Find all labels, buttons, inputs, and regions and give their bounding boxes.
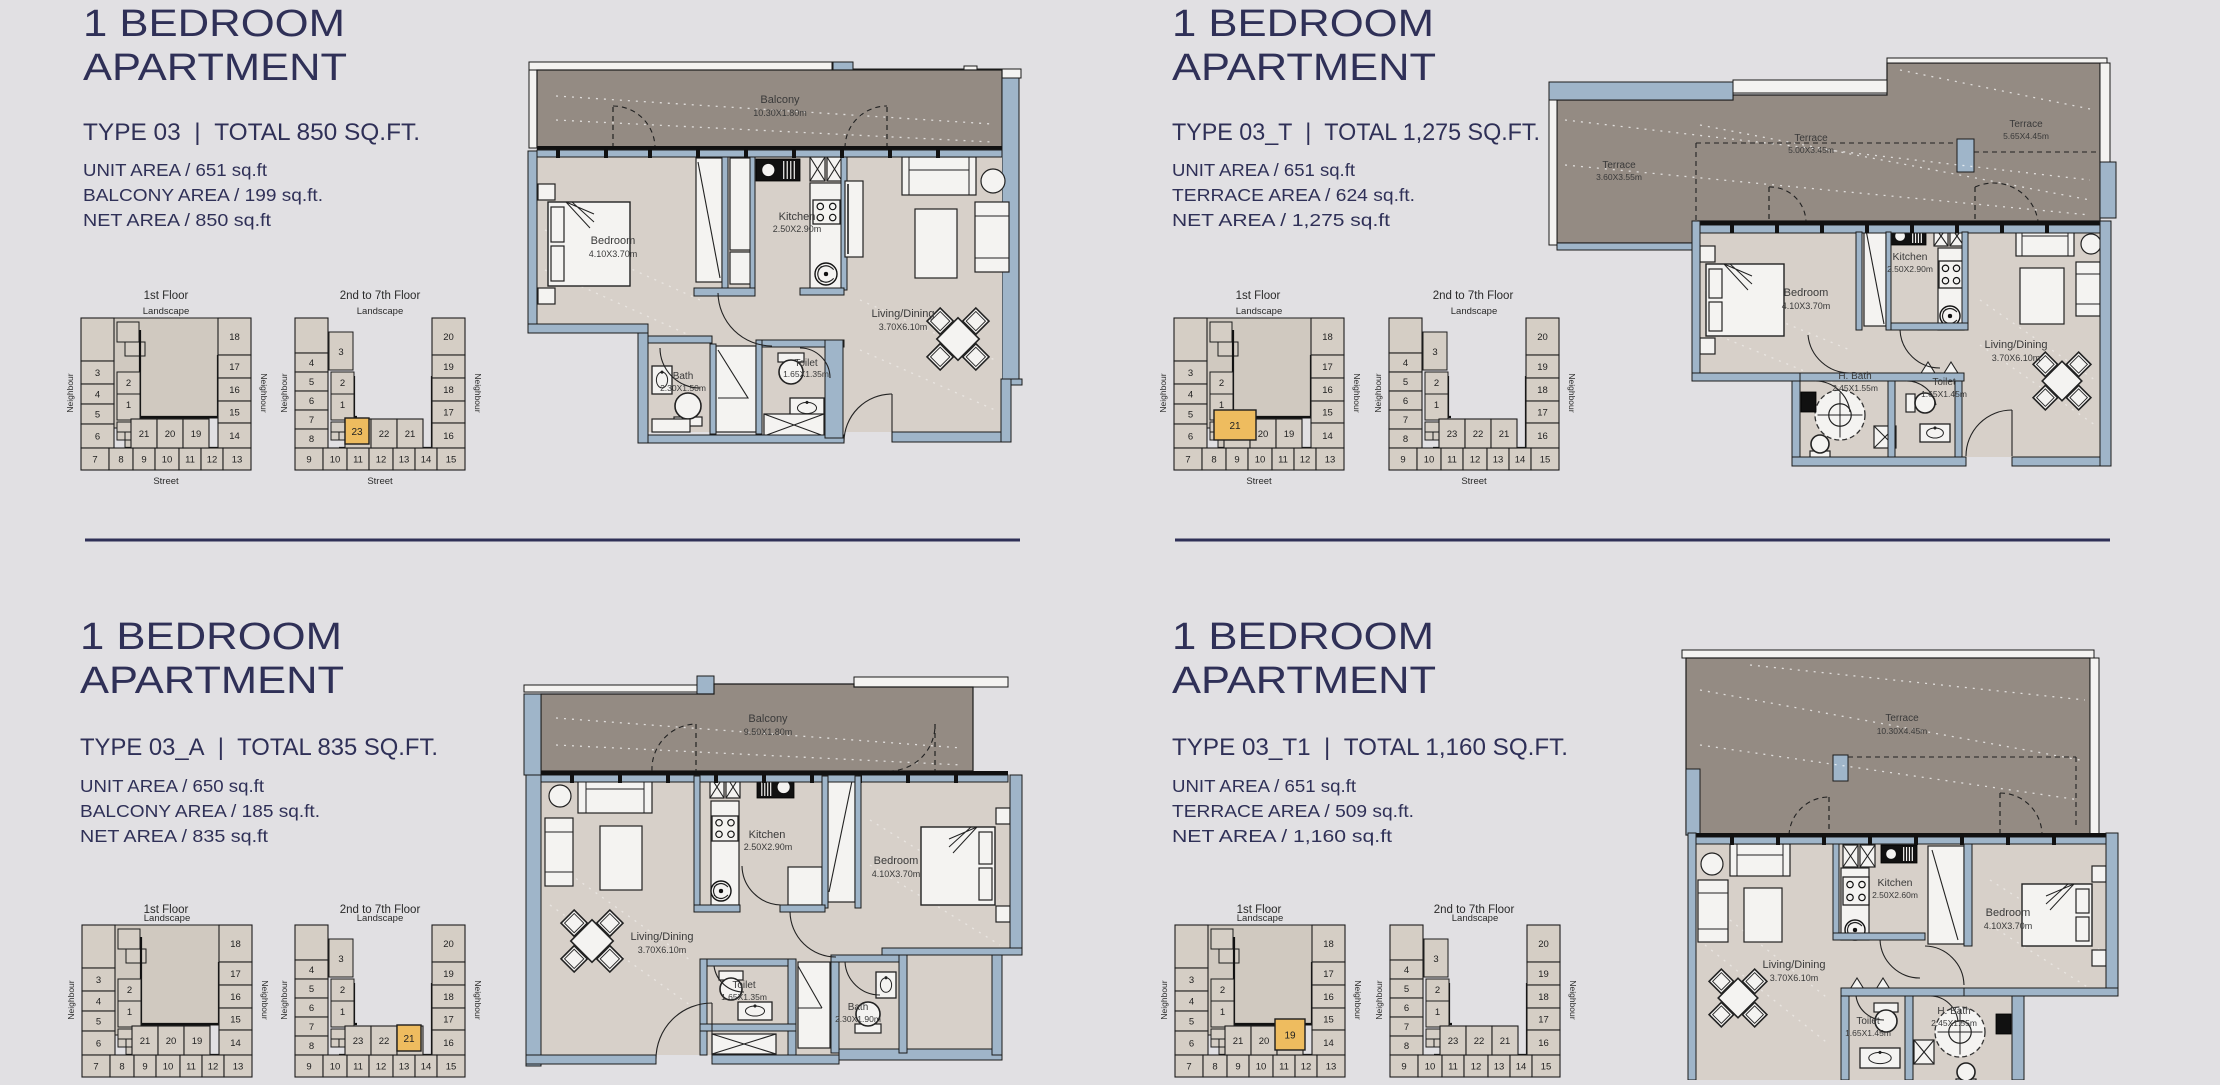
svg-text:17: 17	[1537, 408, 1548, 419]
svg-text:4: 4	[1189, 997, 1194, 1008]
svg-text:20: 20	[165, 429, 176, 440]
svg-text:Toilet: Toilet	[1932, 377, 1956, 388]
svg-text:13: 13	[1493, 455, 1504, 466]
svg-text:12: 12	[376, 455, 387, 466]
svg-text:2.45X1.55m: 2.45X1.55m	[1832, 383, 1878, 393]
svg-text:9: 9	[141, 455, 146, 466]
svg-text:11: 11	[185, 455, 195, 466]
svg-text:Toilet: Toilet	[794, 358, 818, 369]
svg-text:13: 13	[232, 455, 243, 466]
svg-text:18: 18	[1323, 939, 1334, 950]
svg-text:Neighbour: Neighbour	[473, 373, 483, 412]
svg-text:16: 16	[443, 431, 454, 442]
svg-text:1: 1	[1434, 400, 1439, 411]
svg-text:12: 12	[1301, 1062, 1312, 1073]
svg-text:5: 5	[1189, 1017, 1194, 1028]
svg-text:2nd to 7th Floor: 2nd to 7th Floor	[340, 290, 421, 302]
svg-text:TYPE 03_T1 | TOTAL 1,160 SQ.: TYPE 03_T1 | TOTAL 1,160 SQ.FT.	[1172, 734, 1568, 761]
svg-text:22: 22	[379, 429, 390, 440]
svg-text:1: 1	[1435, 1007, 1440, 1018]
svg-text:11: 11	[1447, 455, 1457, 466]
svg-text:8: 8	[309, 434, 314, 445]
svg-text:Neighbour: Neighbour	[260, 980, 270, 1019]
svg-text:APARTMENT: APARTMENT	[80, 660, 344, 702]
svg-text:21: 21	[140, 1036, 151, 1047]
svg-text:18: 18	[1322, 332, 1333, 343]
svg-text:Bedroom: Bedroom	[1986, 907, 2031, 919]
svg-text:BALCONY AREA / 199 sq.ft.: BALCONY AREA / 199 sq.ft.	[83, 185, 323, 205]
svg-text:6: 6	[96, 1039, 101, 1050]
svg-text:4: 4	[95, 390, 100, 401]
svg-text:APARTMENT: APARTMENT	[1172, 660, 1436, 702]
svg-text:6: 6	[1189, 1039, 1194, 1050]
svg-text:Living/Dining: Living/Dining	[872, 308, 935, 320]
svg-text:21: 21	[403, 1034, 415, 1045]
svg-text:4: 4	[96, 997, 101, 1008]
svg-text:2.50X2.90m: 2.50X2.90m	[744, 842, 793, 852]
svg-text:Neighbour: Neighbour	[1159, 980, 1169, 1019]
svg-text:13: 13	[1325, 455, 1336, 466]
svg-text:17: 17	[229, 362, 240, 373]
svg-text:15: 15	[1323, 1015, 1334, 1026]
svg-text:1: 1	[1220, 1007, 1225, 1018]
svg-text:1st Floor: 1st Floor	[144, 290, 189, 302]
svg-text:9: 9	[306, 1062, 311, 1073]
svg-text:19: 19	[1284, 429, 1295, 440]
svg-text:Bath: Bath	[848, 1002, 869, 1013]
svg-text:2: 2	[1435, 985, 1440, 996]
svg-text:Kitchen: Kitchen	[749, 829, 786, 841]
svg-text:6: 6	[1403, 396, 1408, 407]
svg-text:21: 21	[139, 429, 150, 440]
svg-text:14: 14	[229, 431, 240, 442]
svg-text:2.50X2.90m: 2.50X2.90m	[1887, 264, 1933, 274]
svg-text:Neighbour: Neighbour	[279, 980, 289, 1019]
svg-text:23: 23	[351, 427, 363, 438]
svg-text:3: 3	[1433, 954, 1438, 965]
svg-text:23: 23	[1447, 429, 1458, 440]
svg-text:Neighbour: Neighbour	[473, 980, 483, 1019]
svg-text:1 BEDROOM: 1 BEDROOM	[83, 3, 345, 45]
svg-text:1: 1	[126, 400, 131, 411]
svg-text:15: 15	[1540, 455, 1551, 466]
svg-text:Living/Dining: Living/Dining	[631, 931, 694, 943]
svg-text:7: 7	[92, 455, 97, 466]
svg-text:5.00X3.45m: 5.00X3.45m	[1788, 145, 1834, 155]
svg-text:Neighbour: Neighbour	[66, 980, 76, 1019]
svg-text:20: 20	[1259, 1036, 1270, 1047]
svg-text:20: 20	[443, 939, 454, 950]
svg-text:Landscape: Landscape	[357, 913, 403, 924]
svg-text:9: 9	[306, 455, 311, 466]
svg-text:5: 5	[1403, 377, 1408, 388]
svg-text:2: 2	[340, 985, 345, 996]
svg-text:3: 3	[1189, 975, 1194, 986]
svg-text:2: 2	[340, 378, 345, 389]
svg-text:UNIT AREA / 651 sq.ft: UNIT AREA / 651 sq.ft	[1172, 160, 1355, 180]
svg-text:9: 9	[1400, 455, 1405, 466]
svg-text:Kitchen: Kitchen	[1877, 877, 1912, 889]
svg-text:8: 8	[1403, 434, 1408, 445]
svg-text:8: 8	[119, 1062, 124, 1073]
svg-text:Bath: Bath	[673, 371, 694, 382]
svg-text:TYPE 03_T | TOTAL 1,275 SQ.F: TYPE 03_T | TOTAL 1,275 SQ.FT.	[1172, 119, 1540, 146]
svg-text:3.70X6.10m: 3.70X6.10m	[879, 322, 928, 332]
svg-text:7: 7	[93, 1062, 98, 1073]
svg-text:15: 15	[446, 455, 457, 466]
svg-text:19: 19	[192, 1036, 203, 1047]
svg-text:1: 1	[340, 1007, 345, 1018]
svg-text:11: 11	[1448, 1062, 1458, 1073]
svg-text:15: 15	[1541, 1062, 1552, 1073]
svg-text:2.30X1.90m: 2.30X1.90m	[835, 1014, 881, 1024]
svg-text:16: 16	[1323, 992, 1334, 1003]
svg-text:1.65X1.45m: 1.65X1.45m	[1845, 1028, 1891, 1038]
svg-text:10: 10	[330, 1062, 341, 1073]
svg-text:21: 21	[1499, 429, 1510, 440]
svg-text:12: 12	[1471, 1062, 1482, 1073]
svg-text:17: 17	[1323, 969, 1334, 980]
svg-text:4: 4	[309, 358, 314, 369]
svg-text:TERRACE AREA / 624 sq.ft.: TERRACE AREA / 624 sq.ft.	[1172, 185, 1415, 205]
svg-text:10.30X1.80m: 10.30X1.80m	[753, 108, 807, 118]
svg-text:10: 10	[1425, 1062, 1436, 1073]
svg-text:Neighbour: Neighbour	[65, 373, 75, 412]
svg-text:2nd to 7th Floor: 2nd to 7th Floor	[1433, 290, 1514, 302]
svg-text:Balcony: Balcony	[748, 713, 788, 725]
svg-text:2: 2	[1219, 378, 1224, 389]
svg-text:17: 17	[443, 408, 454, 419]
svg-text:Terrace: Terrace	[1794, 133, 1828, 144]
svg-text:6: 6	[1404, 1003, 1409, 1014]
svg-text:Street: Street	[367, 476, 393, 487]
svg-text:1 BEDROOM: 1 BEDROOM	[80, 616, 342, 658]
svg-text:14: 14	[1323, 1038, 1334, 1049]
svg-text:H. Bath: H. Bath	[1937, 1006, 1970, 1017]
svg-text:9: 9	[142, 1062, 147, 1073]
svg-text:12: 12	[376, 1062, 387, 1073]
svg-text:3: 3	[1188, 368, 1193, 379]
svg-text:2: 2	[126, 378, 131, 389]
svg-text:1st Floor: 1st Floor	[1236, 290, 1281, 302]
svg-text:Neighbour: Neighbour	[1374, 980, 1384, 1019]
svg-text:22: 22	[379, 1036, 390, 1047]
svg-text:20: 20	[166, 1036, 177, 1047]
svg-text:16: 16	[443, 1038, 454, 1049]
svg-text:1: 1	[340, 400, 345, 411]
svg-text:16: 16	[230, 992, 241, 1003]
svg-text:NET AREA / 835 sq.ft: NET AREA / 835 sq.ft	[80, 826, 268, 846]
svg-text:21: 21	[1233, 1036, 1244, 1047]
svg-text:14: 14	[1515, 455, 1526, 466]
svg-text:Terrace: Terrace	[1602, 160, 1636, 171]
svg-text:Living/Dining: Living/Dining	[1985, 339, 2048, 351]
svg-text:5: 5	[95, 410, 100, 421]
svg-text:TYPE 03 | TOTAL 850 SQ.FT.: TYPE 03 | TOTAL 850 SQ.FT.	[83, 119, 420, 146]
svg-text:10: 10	[163, 1062, 174, 1073]
svg-text:6: 6	[309, 1003, 314, 1014]
svg-text:Landscape: Landscape	[1452, 913, 1498, 924]
svg-text:3: 3	[95, 368, 100, 379]
svg-text:13: 13	[399, 455, 410, 466]
svg-text:14: 14	[1322, 431, 1333, 442]
svg-text:2.50X2.60m: 2.50X2.60m	[1872, 890, 1918, 900]
svg-text:10: 10	[1256, 1062, 1267, 1073]
svg-text:3.60X3.55m: 3.60X3.55m	[1596, 172, 1642, 182]
svg-text:11: 11	[353, 1062, 363, 1073]
svg-text:Terrace: Terrace	[2009, 119, 2043, 130]
svg-text:10: 10	[330, 455, 341, 466]
svg-text:Neighbour: Neighbour	[1352, 373, 1362, 412]
svg-text:7: 7	[1404, 1022, 1409, 1033]
svg-text:18: 18	[230, 939, 241, 950]
svg-text:Landscape: Landscape	[1451, 306, 1497, 317]
svg-text:APARTMENT: APARTMENT	[1172, 47, 1436, 89]
svg-text:11: 11	[353, 455, 363, 466]
svg-text:17: 17	[1322, 362, 1333, 373]
svg-text:Neighbour: Neighbour	[1568, 980, 1578, 1019]
svg-text:23: 23	[1448, 1036, 1459, 1047]
svg-text:10: 10	[1424, 455, 1435, 466]
svg-text:Neighbour: Neighbour	[1373, 373, 1383, 412]
svg-text:1.65X1.45m: 1.65X1.45m	[1921, 389, 1967, 399]
svg-text:18: 18	[443, 992, 454, 1003]
svg-text:17: 17	[1538, 1015, 1549, 1026]
svg-text:APARTMENT: APARTMENT	[83, 47, 347, 89]
svg-text:20: 20	[1538, 939, 1549, 950]
svg-text:4.10X3.70m: 4.10X3.70m	[589, 249, 638, 259]
svg-text:23: 23	[353, 1036, 364, 1047]
svg-text:UNIT AREA / 651 sq.ft: UNIT AREA / 651 sq.ft	[1172, 776, 1356, 796]
svg-text:9.50X1.80m: 9.50X1.80m	[744, 727, 793, 737]
svg-text:3: 3	[338, 347, 343, 358]
svg-text:8: 8	[1211, 455, 1216, 466]
svg-text:18: 18	[229, 332, 240, 343]
svg-text:22: 22	[1473, 429, 1484, 440]
svg-text:8: 8	[1212, 1062, 1217, 1073]
svg-text:12: 12	[208, 1062, 219, 1073]
svg-text:5.65X4.45m: 5.65X4.45m	[2003, 131, 2049, 141]
svg-text:6: 6	[95, 432, 100, 443]
svg-text:2.30X1.50m: 2.30X1.50m	[660, 383, 706, 393]
svg-text:10: 10	[1255, 455, 1266, 466]
svg-text:5: 5	[309, 984, 314, 995]
svg-text:22: 22	[1474, 1036, 1485, 1047]
svg-text:Living/Dining: Living/Dining	[1763, 959, 1826, 971]
svg-text:2: 2	[127, 985, 132, 996]
svg-text:7: 7	[1185, 455, 1190, 466]
svg-text:Landscape: Landscape	[1237, 913, 1283, 924]
svg-text:Toilet: Toilet	[1856, 1016, 1880, 1027]
svg-text:11: 11	[186, 1062, 196, 1073]
svg-text:9: 9	[1235, 1062, 1240, 1073]
svg-text:Bedroom: Bedroom	[1784, 287, 1829, 299]
svg-text:Toilet: Toilet	[732, 980, 756, 991]
svg-text:TYPE 03_A | TOTAL 835 SQ.FT.: TYPE 03_A | TOTAL 835 SQ.FT.	[80, 734, 438, 761]
svg-text:15: 15	[446, 1062, 457, 1073]
svg-text:Neighbour: Neighbour	[1567, 373, 1577, 412]
svg-text:2.45X1.55m: 2.45X1.55m	[1931, 1018, 1977, 1028]
svg-text:4: 4	[309, 965, 314, 976]
svg-text:18: 18	[1537, 385, 1548, 396]
svg-text:8: 8	[309, 1041, 314, 1052]
svg-text:18: 18	[443, 385, 454, 396]
svg-text:5: 5	[96, 1017, 101, 1028]
svg-text:2: 2	[1220, 985, 1225, 996]
svg-text:7: 7	[1186, 1062, 1191, 1073]
svg-text:16: 16	[1538, 1038, 1549, 1049]
svg-text:8: 8	[118, 455, 123, 466]
svg-text:13: 13	[399, 1062, 410, 1073]
svg-text:NET AREA / 850 sq.ft: NET AREA / 850 sq.ft	[83, 210, 271, 230]
svg-text:TERRACE AREA / 509 sq.ft.: TERRACE AREA / 509 sq.ft.	[1172, 801, 1414, 821]
svg-text:Terrace: Terrace	[1885, 713, 1919, 724]
svg-text:21: 21	[1500, 1036, 1511, 1047]
svg-text:4.10X3.70m: 4.10X3.70m	[872, 869, 921, 879]
svg-text:19: 19	[1284, 1031, 1296, 1042]
svg-text:18: 18	[1538, 992, 1549, 1003]
svg-text:Street: Street	[1461, 476, 1487, 487]
svg-text:Kitchen: Kitchen	[779, 211, 816, 223]
svg-text:6: 6	[1188, 432, 1193, 443]
svg-text:9: 9	[1234, 455, 1239, 466]
svg-text:19: 19	[1537, 362, 1548, 373]
svg-text:5: 5	[1188, 410, 1193, 421]
svg-text:Landscape: Landscape	[143, 306, 189, 317]
svg-text:1 BEDROOM: 1 BEDROOM	[1172, 616, 1434, 658]
svg-text:20: 20	[443, 332, 454, 343]
svg-text:Landscape: Landscape	[144, 913, 190, 924]
svg-text:Landscape: Landscape	[1236, 306, 1282, 317]
svg-text:14: 14	[230, 1038, 241, 1049]
svg-text:19: 19	[443, 969, 454, 980]
svg-text:16: 16	[1322, 385, 1333, 396]
svg-text:20: 20	[1258, 429, 1269, 440]
svg-text:5: 5	[1404, 984, 1409, 995]
svg-text:Street: Street	[153, 476, 179, 487]
svg-text:20: 20	[1537, 332, 1548, 343]
svg-text:3.70X6.10m: 3.70X6.10m	[1992, 353, 2041, 363]
svg-text:13: 13	[1326, 1062, 1337, 1073]
svg-text:3: 3	[96, 975, 101, 986]
svg-text:7: 7	[1403, 415, 1408, 426]
svg-text:19: 19	[443, 362, 454, 373]
svg-text:12: 12	[1300, 455, 1311, 466]
svg-text:21: 21	[405, 429, 416, 440]
svg-text:15: 15	[230, 1015, 241, 1026]
svg-text:12: 12	[207, 455, 218, 466]
svg-text:15: 15	[229, 408, 240, 419]
svg-text:Neighbour: Neighbour	[259, 373, 269, 412]
svg-text:19: 19	[1538, 969, 1549, 980]
svg-text:11: 11	[1279, 1062, 1289, 1073]
svg-text:9: 9	[1401, 1062, 1406, 1073]
svg-text:5: 5	[309, 377, 314, 388]
svg-text:1: 1	[127, 1007, 132, 1018]
svg-text:Bedroom: Bedroom	[874, 855, 919, 867]
svg-text:1.65X1.35m: 1.65X1.35m	[783, 369, 829, 379]
svg-text:16: 16	[1537, 431, 1548, 442]
svg-text:3.70X6.10m: 3.70X6.10m	[638, 945, 687, 955]
svg-text:Neighbour: Neighbour	[279, 373, 289, 412]
svg-text:NET AREA / 1,275 sq.ft: NET AREA / 1,275 sq.ft	[1172, 210, 1390, 230]
svg-text:NET AREA / 1,160 sq.ft: NET AREA / 1,160 sq.ft	[1172, 826, 1392, 846]
svg-text:7: 7	[309, 415, 314, 426]
svg-text:2.50X2.90m: 2.50X2.90m	[773, 224, 822, 234]
svg-text:3: 3	[338, 954, 343, 965]
svg-text:10: 10	[162, 455, 173, 466]
svg-text:Neighbour: Neighbour	[1158, 373, 1168, 412]
svg-text:UNIT AREA / 650 sq.ft: UNIT AREA / 650 sq.ft	[80, 776, 264, 796]
svg-text:UNIT AREA / 651 sq.ft: UNIT AREA / 651 sq.ft	[83, 160, 267, 180]
svg-text:13: 13	[1494, 1062, 1505, 1073]
svg-text:Kitchen: Kitchen	[1892, 251, 1927, 263]
svg-text:4: 4	[1404, 965, 1409, 976]
svg-text:4: 4	[1188, 390, 1193, 401]
svg-text:3.70X6.10m: 3.70X6.10m	[1770, 973, 1819, 983]
svg-text:2: 2	[1434, 378, 1439, 389]
svg-text:6: 6	[309, 396, 314, 407]
svg-text:Balcony: Balcony	[760, 94, 800, 106]
svg-text:14: 14	[1516, 1062, 1527, 1073]
svg-text:4.10X3.70m: 4.10X3.70m	[1984, 921, 2033, 931]
svg-text:12: 12	[1470, 455, 1481, 466]
svg-text:3: 3	[1432, 347, 1437, 358]
svg-text:Landscape: Landscape	[357, 306, 403, 317]
svg-text:11: 11	[1278, 455, 1288, 466]
svg-text:21: 21	[1229, 421, 1241, 432]
svg-text:13: 13	[233, 1062, 244, 1073]
svg-text:4: 4	[1403, 358, 1408, 369]
svg-text:19: 19	[191, 429, 202, 440]
svg-text:4.10X3.70m: 4.10X3.70m	[1782, 301, 1831, 311]
svg-text:14: 14	[421, 455, 432, 466]
svg-text:15: 15	[1322, 408, 1333, 419]
svg-text:7: 7	[309, 1022, 314, 1033]
svg-text:8: 8	[1404, 1041, 1409, 1052]
svg-text:10.30X4.45m: 10.30X4.45m	[1877, 726, 1928, 736]
svg-text:17: 17	[230, 969, 241, 980]
svg-text:1.65X1.35m: 1.65X1.35m	[721, 992, 767, 1002]
svg-text:1 BEDROOM: 1 BEDROOM	[1172, 3, 1434, 45]
svg-text:14: 14	[421, 1062, 432, 1073]
svg-text:H. Bath: H. Bath	[1838, 371, 1871, 382]
svg-text:Neighbour: Neighbour	[1353, 980, 1363, 1019]
svg-text:16: 16	[229, 385, 240, 396]
svg-text:17: 17	[443, 1015, 454, 1026]
svg-text:Bedroom: Bedroom	[591, 235, 636, 247]
svg-text:BALCONY AREA / 185 sq.ft.: BALCONY AREA / 185 sq.ft.	[80, 801, 320, 821]
svg-text:Street: Street	[1246, 476, 1272, 487]
